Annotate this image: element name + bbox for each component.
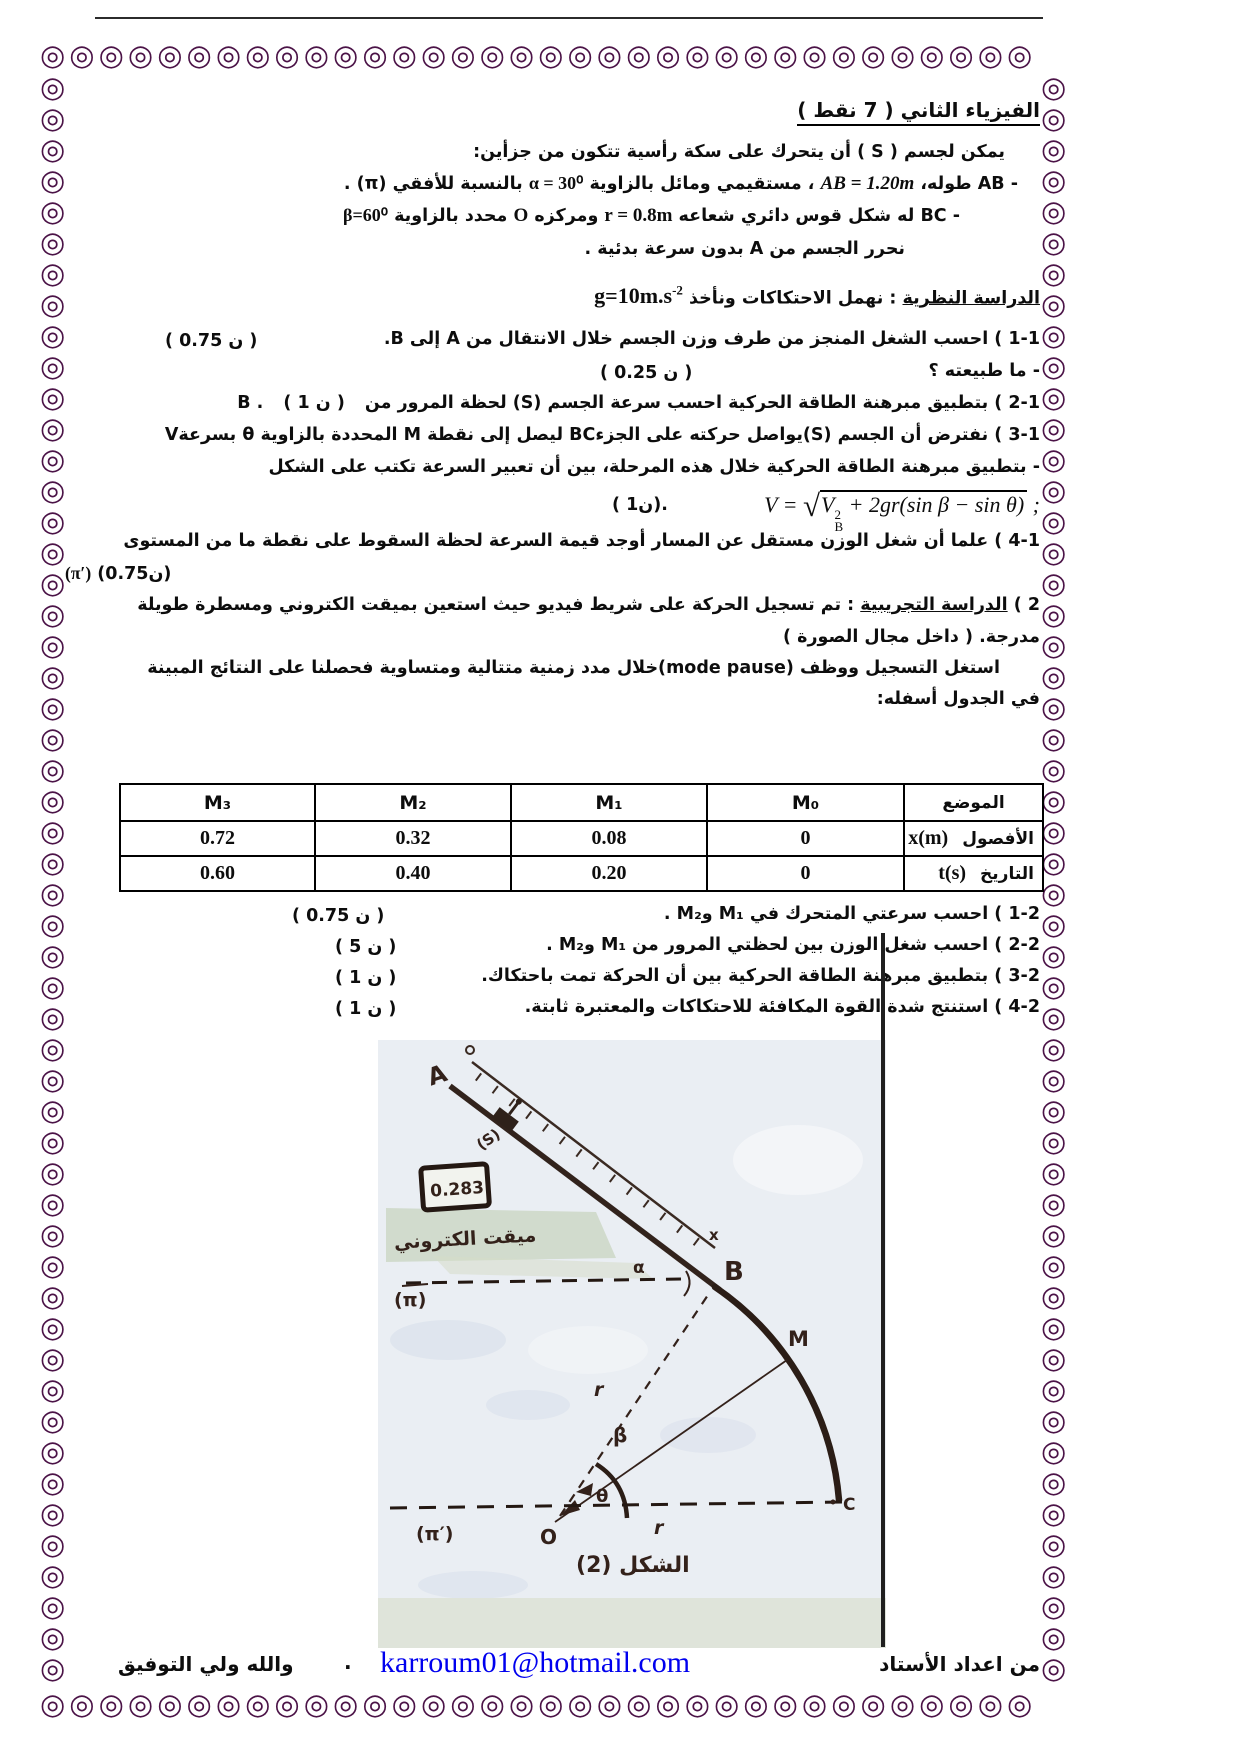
- question-4-1: 4-1 ) علما أن شغل الوزن مستقل عن المسار …: [123, 531, 1040, 551]
- footer-email-link[interactable]: karroum01@hotmail.com: [380, 1646, 690, 1680]
- question-2-1-text: 2-1 ) بتطبيق مبرهنة الطاقة الحركية احسب …: [237, 393, 1040, 413]
- question-3-2-text: 3-2 ) بتطبيق مبرهنة الطاقة الحركية بين أ…: [481, 966, 1040, 986]
- experiment-text3: استغل التسجيل ووظف (mode pause)خلال مدد …: [147, 658, 1000, 678]
- radius-r-label-oc: r: [654, 1517, 665, 1539]
- ab-mid: ، مستقيمي ومائل بالزاوية: [589, 174, 814, 194]
- center-label: O: [513, 205, 528, 226]
- release-text: نحرر الجسم من A بدون سرعة بدئية .: [585, 239, 905, 259]
- mark-4-1: (0.75ن): [97, 564, 171, 584]
- mark-1-1b: ( 0.25 ن ): [600, 363, 692, 383]
- header-m1: M₁: [511, 784, 707, 821]
- question-2-2-text: 2-2 ) احسب شغل الوزن بين لحظتي المرور من…: [546, 935, 1040, 955]
- mark-2-2: ( 5 ن ): [335, 937, 396, 957]
- timer-value: 0.283: [430, 1178, 485, 1202]
- table-row-x: الأفصولx(m) 0 0.08 0.32 0.72: [120, 821, 1043, 856]
- experiment-heading-line: 2 ) الدراسة التجريبية : تم تسجيل الحركة …: [137, 595, 1040, 615]
- theory-heading: الدراسة النظرية: [903, 288, 1041, 308]
- radical-sign: √: [803, 488, 820, 523]
- radicand: V2B + 2gr(sin β − sin θ): [820, 490, 1027, 517]
- mark-4-2: ( 1 ن ): [335, 999, 396, 1019]
- point-o-label: O: [540, 1525, 557, 1549]
- point-b-label: B: [724, 1257, 744, 1287]
- t-m0: 0: [707, 856, 904, 891]
- exam-page: { "page": { "title": "الفيزياء الثاني ( …: [0, 0, 1240, 1754]
- t-m1: 0.20: [511, 856, 707, 891]
- mark-1-2: ( 0.75 ن ): [292, 906, 384, 926]
- formula-close: ;: [1027, 492, 1040, 517]
- x-m1: 0.08: [511, 821, 707, 856]
- beta-label: β: [613, 1423, 627, 1447]
- question-4-1b: (π′) (0.75ن): [65, 563, 171, 584]
- alpha-value: α = 30⁰: [529, 173, 584, 193]
- plane-pi-prime: (π′): [65, 563, 91, 583]
- figure-right-edge-line: [881, 933, 885, 1647]
- question-1-1b: - ما طبيعته ؟: [928, 361, 1040, 381]
- header-position: الموضع: [904, 784, 1043, 821]
- border-ornament-bottom: ◎◎◎◎◎◎◎◎◎◎◎◎◎◎◎◎◎◎◎◎◎◎◎◎◎◎◎◎◎◎◎◎◎◎: [40, 1687, 1042, 1722]
- page-title: الفيزياء الثاني ( 7 نقط ): [797, 98, 1040, 126]
- ab-length: AB = 1.20m: [821, 173, 915, 194]
- question-3-1b: - بتطبيق مبرهنة الطاقة الحركية خلال هذه …: [268, 457, 1040, 477]
- question-3-1: 3-1 ) نفترض أن الجسم (S)يواصل حركته على …: [165, 425, 1040, 445]
- row-t-label-cell: التاريخt(s): [904, 856, 1043, 891]
- release-line: نحرر الجسم من A بدون سرعة بدئية .: [585, 239, 905, 259]
- question-4-2: 4-2 ) استنتج شدة القوة المكافئة للاحتكاك…: [525, 997, 1040, 1017]
- segment-bc-line: - BC له شكل قوس دائري شعاعه r = 0.8m ومر…: [343, 205, 960, 227]
- segment-ab-line: - AB طوله، AB = 1.20m ، مستقيمي ومائل با…: [344, 173, 1018, 195]
- footer-blessing: والله ولي التوفيق: [118, 1652, 294, 1676]
- experiment-line2: مدرجة. ( داخل مجال الصورة ): [783, 627, 1040, 647]
- question-1-1: 1-1 ) احسب الشغل المنجز من طرف وزن الجسم…: [384, 329, 1040, 349]
- bc-mid: ومركزه: [534, 206, 598, 226]
- border-ornament-left: ◎◎◎◎◎◎◎◎◎◎◎◎◎◎◎◎◎◎◎◎◎◎◎◎◎◎◎◎◎◎◎◎◎◎◎◎◎◎◎◎…: [40, 72, 74, 1686]
- experiment-text2: مدرجة. ( داخل مجال الصورة ): [783, 627, 1040, 647]
- mark-2-1: ( 1 ن ): [283, 393, 344, 413]
- ab-post: بالنسبة للأفقي (π) .: [344, 174, 523, 194]
- x-m3: 0.72: [120, 821, 315, 856]
- question-1-2: 1-2 ) احسب سرعتي المتحرك في M₁ وM₂ .: [664, 904, 1040, 924]
- theory-heading-line: الدراسة النظرية : نهمل الاحتكاكات ونأخذ …: [588, 283, 1040, 309]
- photo-bottom-strip: [378, 1598, 886, 1648]
- intro-line: يمكن لجسم ( S ) أن يتحرك على سكة رأسية ت…: [473, 142, 1005, 162]
- question-1-2-text: 1-2 ) احسب سرعتي المتحرك في M₁ وM₂ .: [664, 904, 1040, 924]
- ab-pre: - AB طوله،: [920, 174, 1018, 194]
- footer-dot: .: [344, 1650, 352, 1674]
- t-m3: 0.60: [120, 856, 315, 891]
- question-1-1-text: 1-1 ) احسب الشغل المنجز من طرف وزن الجسم…: [384, 329, 1040, 349]
- header-rule: [95, 17, 1043, 19]
- question-3-1b-text: - بتطبيق مبرهنة الطاقة الحركية خلال هذه …: [268, 457, 1040, 477]
- border-ornament-right: ◎◎◎◎◎◎◎◎◎◎◎◎◎◎◎◎◎◎◎◎◎◎◎◎◎◎◎◎◎◎◎◎◎◎◎◎◎◎◎◎…: [1041, 72, 1075, 1686]
- exercise-title-row: الفيزياء الثاني ( 7 نقط ): [797, 98, 1040, 122]
- border-ornament-top: ◎◎◎◎◎◎◎◎◎◎◎◎◎◎◎◎◎◎◎◎◎◎◎◎◎◎◎◎◎◎◎◎◎◎: [40, 38, 1042, 72]
- mark-3-2: ( 1 ن ): [335, 968, 396, 988]
- x-mark: x: [709, 1226, 719, 1244]
- plane-pi-label: (π): [394, 1289, 426, 1311]
- question-2-2: 2-2 ) احسب شغل الوزن بين لحظتي المرور من…: [546, 935, 1040, 955]
- header-m0: M₀: [707, 784, 904, 821]
- radius-r-label-ob: r: [594, 1379, 605, 1401]
- point-c-label: C: [843, 1495, 855, 1515]
- experiment-text1: : تم تسجيل الحركة على شريط فيديو حيث است…: [137, 595, 854, 615]
- timer-display: 0.283: [421, 1164, 490, 1211]
- bc-pre: - BC له شكل قوس دائري شعاعه: [679, 206, 960, 226]
- header-m2: M₂: [315, 784, 511, 821]
- experiment-line3: استغل التسجيل ووظف (mode pause)خلال مدد …: [147, 658, 1000, 678]
- question-3-1-text: 3-1 ) نفترض أن الجسم (S)يواصل حركته على …: [165, 425, 1040, 445]
- mark-1-1: ( 0.75 ن ): [165, 331, 257, 351]
- question-4-2-text: 4-2 ) استنتج شدة القوة المكافئة للاحتكاك…: [525, 997, 1040, 1017]
- experiment-heading: الدراسة التجريبية: [860, 595, 1007, 615]
- footer-author: من اعداد الأستاد: [879, 1652, 1040, 1676]
- t-m2: 0.40: [315, 856, 511, 891]
- bc-mid2: محدد بالزاوية: [394, 206, 507, 226]
- experiment-line4: في الجدول أسفله:: [877, 689, 1040, 709]
- beta-value: β=60⁰: [343, 205, 388, 225]
- experiment-text4: في الجدول أسفله:: [877, 689, 1040, 709]
- data-table: الموضع M₀ M₁ M₂ M₃ الأفصولx(m) 0 0.08 0.…: [119, 783, 1044, 892]
- speed-formula: V = √V2B + 2gr(sin β − sin θ) ;: [764, 488, 1040, 533]
- x-m0: 0: [707, 821, 904, 856]
- figure-caption: الشكل (2): [576, 1553, 690, 1578]
- figure-photo: A (S) 0.283 ميقت الكتروني (π) α x B M r …: [378, 1040, 886, 1648]
- table-header-row: الموضع M₀ M₁ M₂ M₃: [120, 784, 1043, 821]
- intro-text: يمكن لجسم ( S ) أن يتحرك على سكة رأسية ت…: [473, 142, 1005, 162]
- row-x-label-cell: الأفصولx(m): [904, 821, 1043, 856]
- plane-pi-prime-label: (π′): [416, 1523, 453, 1545]
- question-2-1: 2-1 ) بتطبيق مبرهنة الطاقة الحركية احسب …: [237, 393, 1040, 413]
- mark-formula: ( 1ن).: [612, 495, 668, 515]
- header-m3: M₃: [120, 784, 315, 821]
- radius-value: r = 0.8m: [604, 205, 672, 226]
- theory-heading-rest: : نهمل الاحتكاكات ونأخذ: [689, 288, 896, 308]
- gravity-value: g=10m.s-2: [594, 283, 683, 308]
- point-m-label: M: [788, 1327, 809, 1351]
- question-4-1-text: 4-1 ) علما أن شغل الوزن مستقل عن المسار …: [123, 531, 1040, 551]
- experiment-num: 2 ): [1014, 595, 1040, 615]
- table-row-t: التاريخt(s) 0 0.20 0.40 0.60: [120, 856, 1043, 891]
- x-m2: 0.32: [315, 821, 511, 856]
- alpha-label: α: [633, 1258, 645, 1278]
- question-1-1b-text: - ما طبيعته ؟: [928, 361, 1040, 381]
- formula-lhs: V =: [764, 492, 803, 517]
- question-3-2: 3-2 ) بتطبيق مبرهنة الطاقة الحركية بين أ…: [481, 966, 1040, 986]
